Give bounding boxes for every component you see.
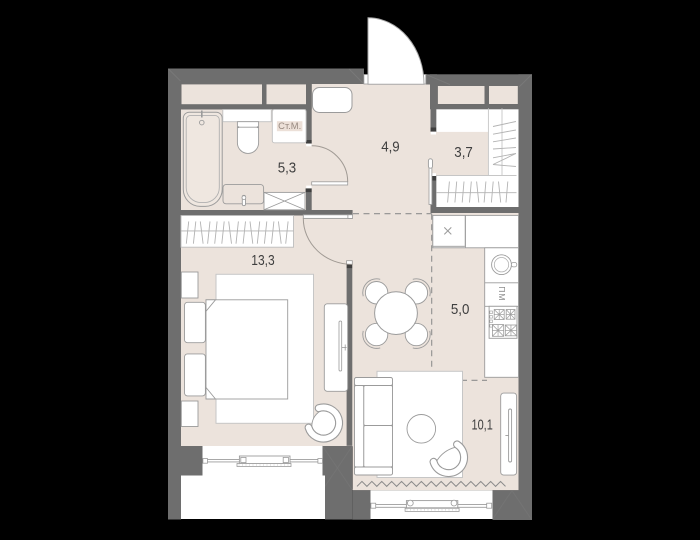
svg-text:5,3: 5,3 (278, 159, 297, 176)
svg-text:10,1: 10,1 (472, 416, 493, 433)
svg-text:4,9: 4,9 (381, 139, 400, 156)
svg-text:ПМ: ПМ (497, 286, 507, 301)
svg-text:13,3: 13,3 (251, 252, 274, 269)
svg-text:Ст.М.: Ст.М. (278, 121, 301, 131)
svg-text:5,0: 5,0 (451, 301, 470, 318)
svg-text:3,7: 3,7 (454, 144, 473, 161)
